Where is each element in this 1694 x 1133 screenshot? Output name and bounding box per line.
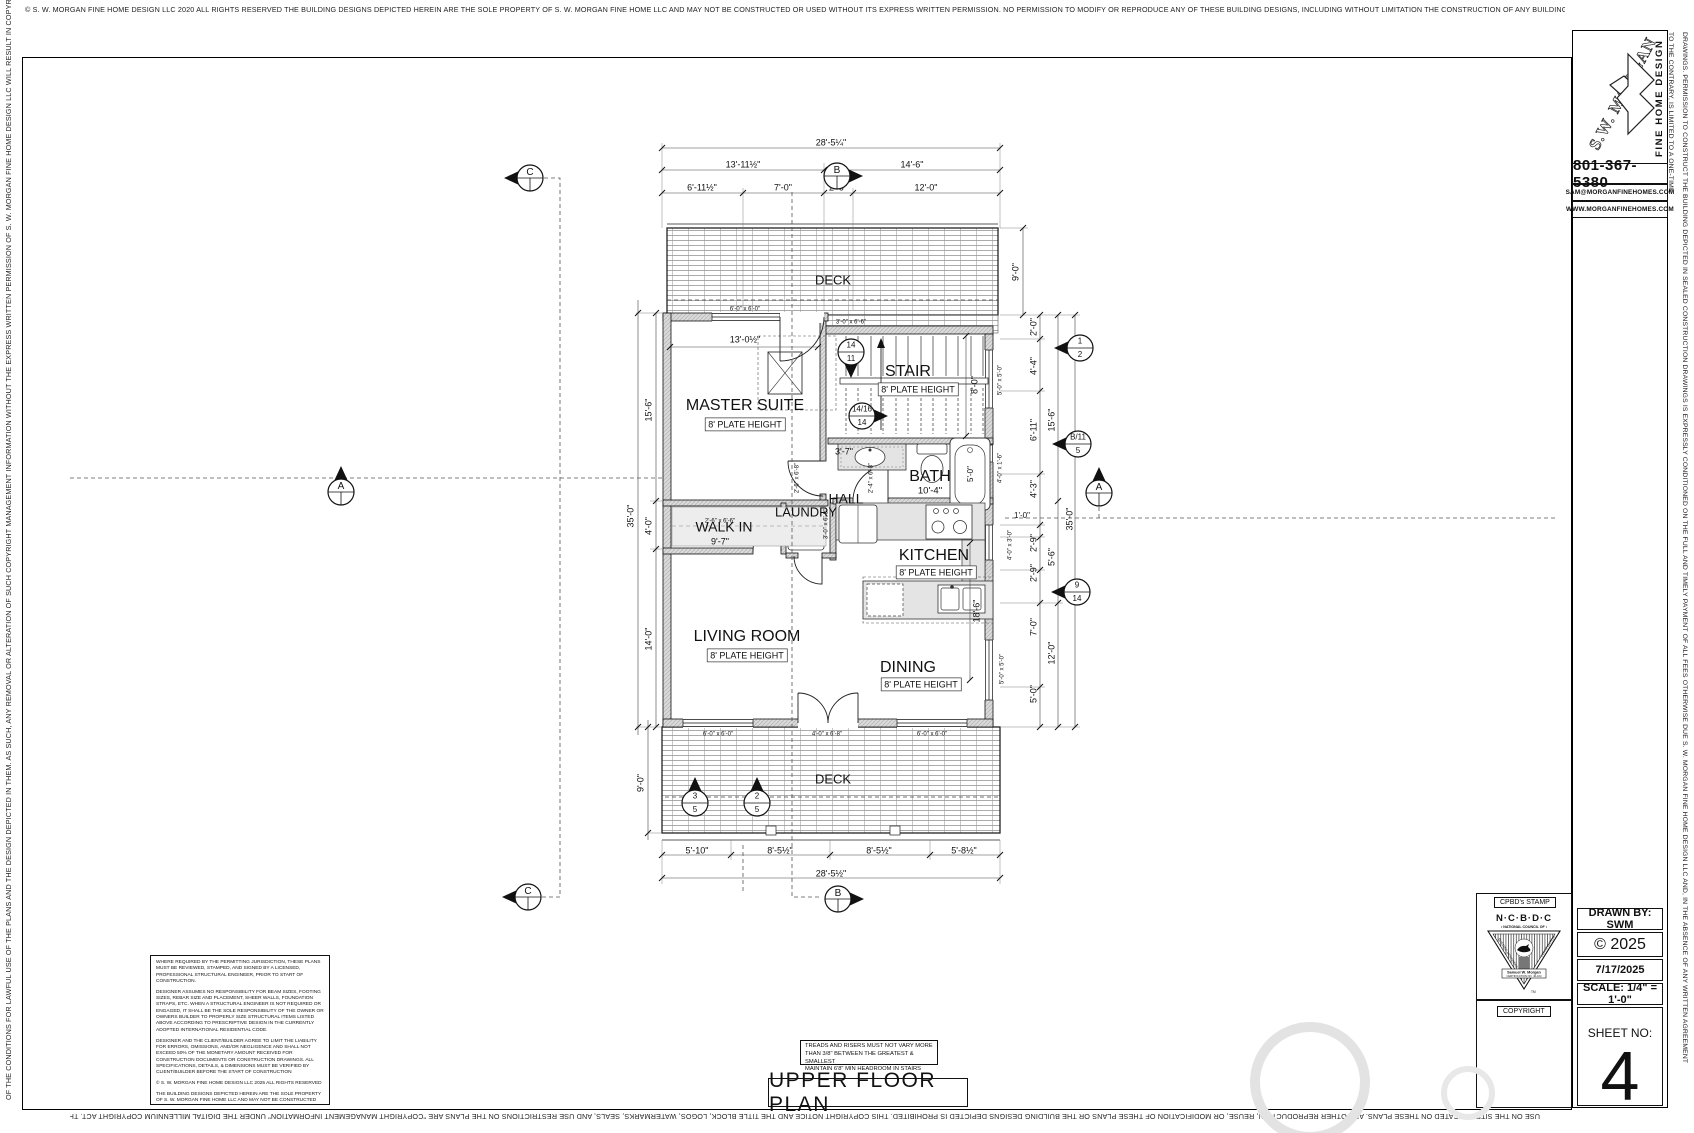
stair-note-line: THAN 3/8" BETWEEN THE GREATEST & SMALLES…: [805, 1051, 933, 1067]
stair-note-line: TREADS AND RISERS MUST NOT VARY MORE: [805, 1043, 933, 1051]
svg-text:CERTIFICATION NO. 40-104: CERTIFICATION NO. 40-104: [1507, 974, 1542, 978]
copyright-year: © 2025: [1577, 932, 1663, 957]
disclaimer-paragraph: DESIGNER AND THE CLIENT/BUILDER AGREE TO…: [156, 1039, 324, 1077]
drawn-by: DRAWN BY: SWM: [1577, 908, 1663, 930]
floor-plan-title-text: UPPER FLOOR PLAN: [769, 1069, 967, 1117]
drawing-sheet: © S. W. MORGAN FINE HOME DESIGN LLC 2020…: [0, 0, 1694, 1133]
disclaimer-paragraph: DESIGNER ASSUMES NO RESPONSIBILITY FOR B…: [156, 990, 324, 1034]
sheet-number-box: SHEET NO: 4: [1577, 1007, 1663, 1106]
brand-logo-block: S.W. MORGAN FINE HOME DESIGN: [1572, 30, 1668, 163]
copyright-stamp-label: COPYRIGHT: [1497, 1006, 1551, 1017]
stair-note: TREADS AND RISERS MUST NOT VARY MORETHAN…: [800, 1040, 938, 1065]
email-address: SAM@MORGANFINEHOMES.COM: [1572, 184, 1668, 201]
top-copyright-strip: © S. W. MORGAN FINE HOME DESIGN LLC 2020…: [25, 5, 1565, 14]
phone-number: 801-367-5380: [1572, 163, 1668, 184]
disclaimer-paragraph: WHERE REQUIRED BY THE PERMITTING JURISDI…: [156, 960, 324, 985]
brand-tagline: FINE HOME DESIGN: [1654, 40, 1665, 157]
left-copyright-strip: OF THE CONDITIONS FOR LAWFUL USE OF THE …: [4, 55, 13, 1100]
svg-text:• NATIONAL COUNCIL OF •: • NATIONAL COUNCIL OF •: [1501, 925, 1548, 929]
disclaimer-paragraph: THE BUILDING DESIGNS DEPICTED HEREIN ARE…: [156, 1092, 324, 1105]
plan-date: 7/17/2025: [1577, 959, 1663, 981]
ncbdc-seal: N·C·B·D·C • NATIONAL COUNCIL OF • BUILDI…: [1476, 905, 1572, 1000]
brand-logo: S.W. MORGAN FINE HOME DESIGN: [1572, 30, 1668, 163]
svg-text:TM: TM: [1531, 990, 1536, 994]
svg-text:N·C·B·D·C: N·C·B·D·C: [1496, 913, 1552, 924]
scale-label: SCALE: 1/4" = 1'-0": [1577, 983, 1663, 1005]
website-url: WWW.MORGANFINEHOMES.COM: [1572, 201, 1668, 218]
floor-plan-title: UPPER FLOOR PLAN: [768, 1078, 968, 1107]
sheet-frame: [22, 57, 1572, 1110]
disclaimer-block: WHERE REQUIRED BY THE PERMITTING JURISDI…: [150, 955, 330, 1105]
sheet-number: 4: [1601, 1040, 1640, 1114]
svg-text:Samuel W. Morgan: Samuel W. Morgan: [1507, 971, 1541, 975]
disclaimer-paragraph: © S. W. MORGAN FINE HOME DESIGN LLC 2025…: [156, 1081, 324, 1087]
